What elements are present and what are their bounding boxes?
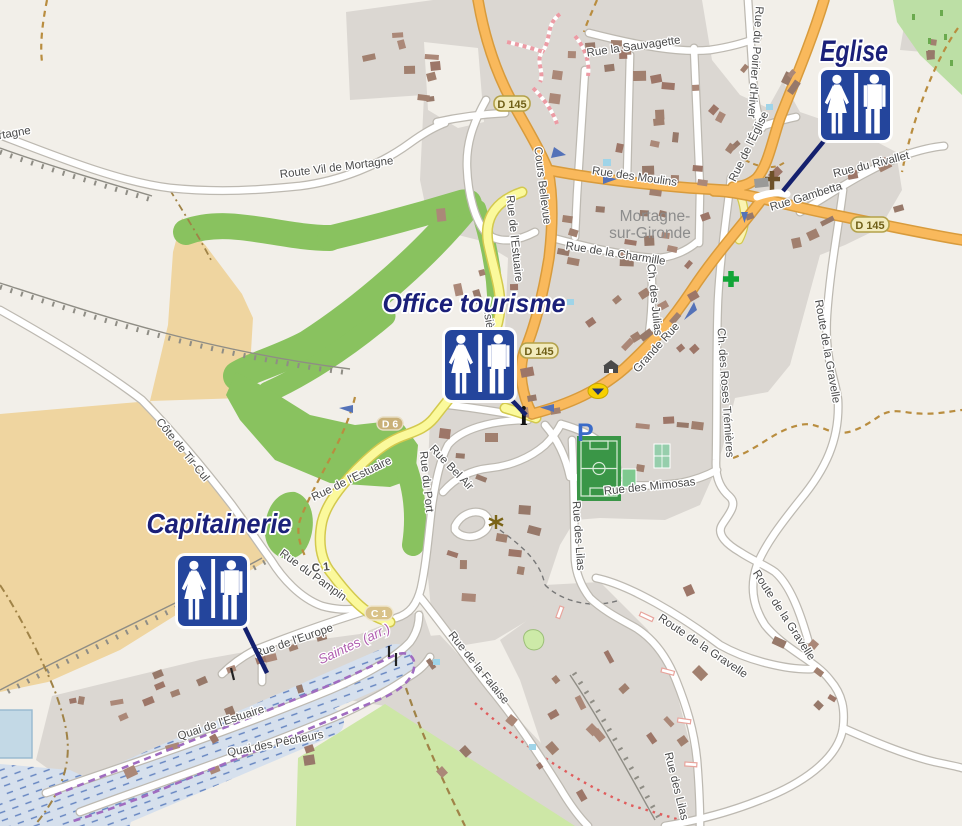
svg-text:C 1: C 1 — [371, 608, 388, 620]
svg-text:Mortagne-: Mortagne- — [620, 208, 691, 225]
svg-text:Office tourisme: Office tourisme — [383, 288, 566, 318]
svg-text:Eglise: Eglise — [820, 35, 888, 68]
svg-text:P: P — [577, 419, 594, 447]
svg-text:D 145: D 145 — [855, 220, 884, 232]
svg-text:Capitainerie: Capitainerie — [147, 508, 292, 539]
svg-text:D 145: D 145 — [497, 99, 526, 111]
svg-text:D 6: D 6 — [382, 419, 399, 431]
svg-text:D 145: D 145 — [524, 346, 553, 358]
svg-text:C 1: C 1 — [311, 561, 331, 575]
svg-text:sur-Gironde: sur-Gironde — [609, 225, 691, 242]
